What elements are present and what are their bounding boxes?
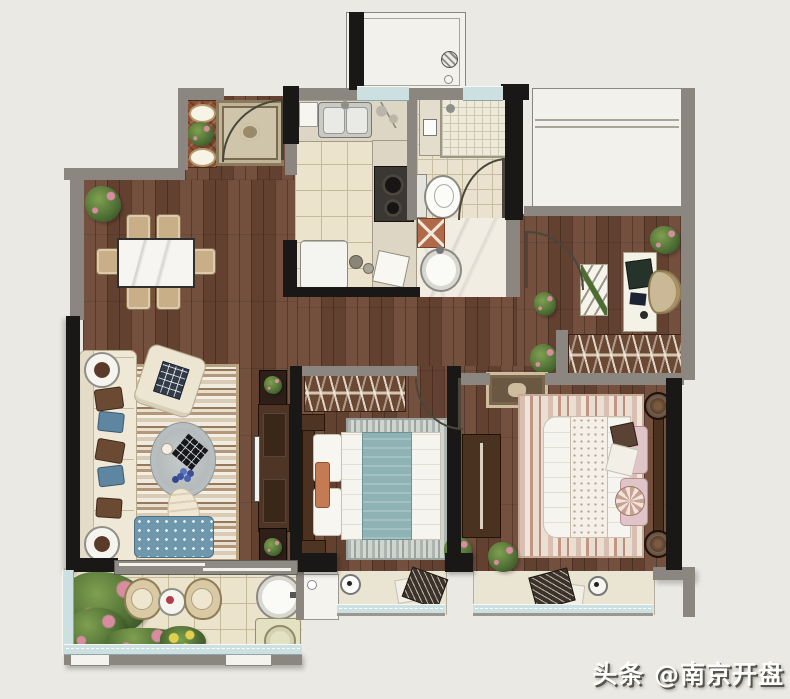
decor-plate [189,104,216,123]
side-table [84,526,120,562]
sofa-pillow [97,411,125,434]
speaker-cabinet [259,528,287,564]
dining-table [117,238,195,288]
console-panel [263,413,286,457]
toilet-seat [434,184,454,208]
bay-lamp [340,574,361,595]
wall [178,96,188,170]
wall-structural [666,378,682,570]
faucet-icon [436,246,444,254]
balcony-glass-left [62,570,74,654]
wall [70,180,84,320]
glass-dash-line [66,648,300,649]
wall-structural [505,96,523,220]
sofa-pillow [94,386,125,412]
sofa-pillow [97,464,125,487]
wall-structural [288,287,420,297]
decor-plate [189,148,216,167]
desk-item [640,311,648,319]
glass-dash-line [475,608,651,609]
floor-plan-canvas: 头条 @南京开盘 [0,0,790,699]
wall-pillar [70,654,110,666]
ottoman-bench [134,516,214,558]
dining-chair [192,248,216,275]
television [254,436,260,502]
wardrobe-corridor [568,334,685,376]
speaker-plant [264,538,282,556]
bed-runner [362,432,412,540]
bay-lamp-dot [594,582,599,587]
glass-dash-line [339,608,443,609]
platform-window-line-1 [535,119,679,121]
speaker-plant [264,376,282,394]
sofa-pillow [94,438,125,465]
wall [506,218,520,297]
stove-burner [384,199,402,217]
bay-window-outer-line-master [473,613,653,616]
wall [296,568,304,620]
armchair-plaid-pillow [153,361,190,400]
study-plant [650,226,680,254]
wall-structural [283,86,299,144]
wall-structural [445,553,473,572]
bed-middle [302,430,440,540]
bed-master [543,416,662,536]
wall [545,373,684,385]
balcony-chair [184,578,222,620]
chair-cushion [191,588,213,610]
wall [683,567,695,617]
equipment-platform-right [532,88,684,214]
wall [681,88,695,380]
round-cushion [615,486,645,516]
sliding-panel [119,563,205,566]
balcony-chair [124,578,162,620]
drain-dot-icon [307,580,317,590]
master-cabinet [462,434,501,538]
kitchen-sink [318,102,372,138]
kitchen-fridge [300,240,348,290]
kitchen-window [357,86,409,101]
bathroom-window [463,86,503,101]
wardrobe-bedroom-middle [304,374,406,412]
accent-pillow [315,462,330,508]
kitchen-utensil-decor [374,102,404,128]
speaker-cabinet [259,370,287,406]
shower-area [440,98,510,158]
vanity-basin [420,248,462,292]
wall-structural [295,553,337,572]
kitchen-decor-jar [349,255,363,269]
nightstand [300,414,325,431]
watermark: 头条 @南京开盘 [592,655,784,691]
wall [285,143,297,175]
cabinet-handle [480,443,483,529]
wall [64,168,185,180]
equipment-platform-top [346,12,466,92]
wall [556,330,568,376]
coffee-table [150,422,216,498]
sink-basin [323,107,345,134]
wall-pillar [225,654,272,666]
bathroom-cabinet [419,98,441,156]
wall [297,366,417,376]
coffee-table-tray [172,434,209,471]
bed-runner [570,416,608,538]
kitchen-decor-jar [363,263,374,274]
toilet-bowl [424,175,462,219]
faucet-icon [341,101,349,109]
study-door-leaf [525,231,528,288]
wall-structural [66,316,80,572]
stove-burner [382,174,404,196]
flue-icon [441,51,458,68]
balcony-glass-front [64,644,302,655]
table-decor [166,596,174,604]
platform-window-line-2 [535,126,679,128]
toilet [414,172,460,218]
bay-window-outer-line-middle [337,613,445,616]
wall [524,206,684,216]
floor-drain-box [417,218,445,248]
wall-structural [290,366,302,568]
desk-notebook [629,292,646,306]
balcony-table [158,588,186,616]
tv-console [258,404,290,532]
coffee-cup [161,443,173,455]
entry-console [185,100,217,168]
sliding-panel [203,568,291,571]
corridor-plant [534,292,556,316]
appliance-icon [423,119,437,136]
side-table [84,352,120,388]
bay-lamp-dot [347,581,352,586]
bay-lamp [588,576,608,596]
sink-basin [346,107,368,134]
kitchen-dish-rack [299,102,318,127]
drain-dot-icon [444,75,453,84]
flower-vase [177,473,184,480]
headboard [653,416,664,538]
console-panel [263,479,286,523]
exterior-ledge [303,574,339,620]
corridor-plant [530,344,558,374]
wall [407,96,417,220]
shower-head-icon [446,104,455,113]
dining-plant [85,186,121,222]
bedroom-master-plant [488,542,518,572]
wall-structural [349,12,364,90]
balcony-sliding-door [114,560,298,575]
chair-cushion [131,588,153,610]
bedroom-middle-door-leaf [458,378,461,428]
entry-plant [188,122,214,146]
kitchen-cutting-board [372,250,410,288]
sofa-pillow [95,497,122,519]
study-tray-rug [580,264,608,316]
